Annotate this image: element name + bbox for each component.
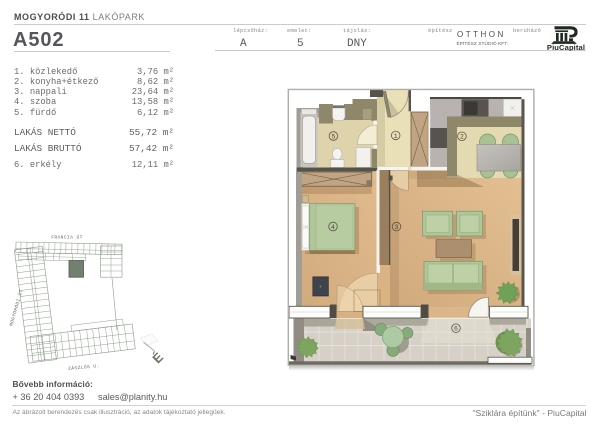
svg-text:4: 4 [331, 224, 335, 231]
svg-text:3: 3 [395, 224, 399, 231]
svg-text:FRANCIA ÚT: FRANCIA ÚT [51, 234, 83, 241]
svg-text:É: É [149, 349, 166, 366]
svg-text:MOGYORÓDI ÚT: MOGYORÓDI ÚT [7, 288, 24, 326]
svg-text:2: 2 [460, 134, 464, 141]
svg-text:1: 1 [394, 133, 398, 140]
svg-text:6: 6 [454, 326, 458, 333]
svg-text:5: 5 [331, 133, 335, 140]
svg-text:ZÁSZLÓS U.: ZÁSZLÓS U. [68, 362, 100, 372]
